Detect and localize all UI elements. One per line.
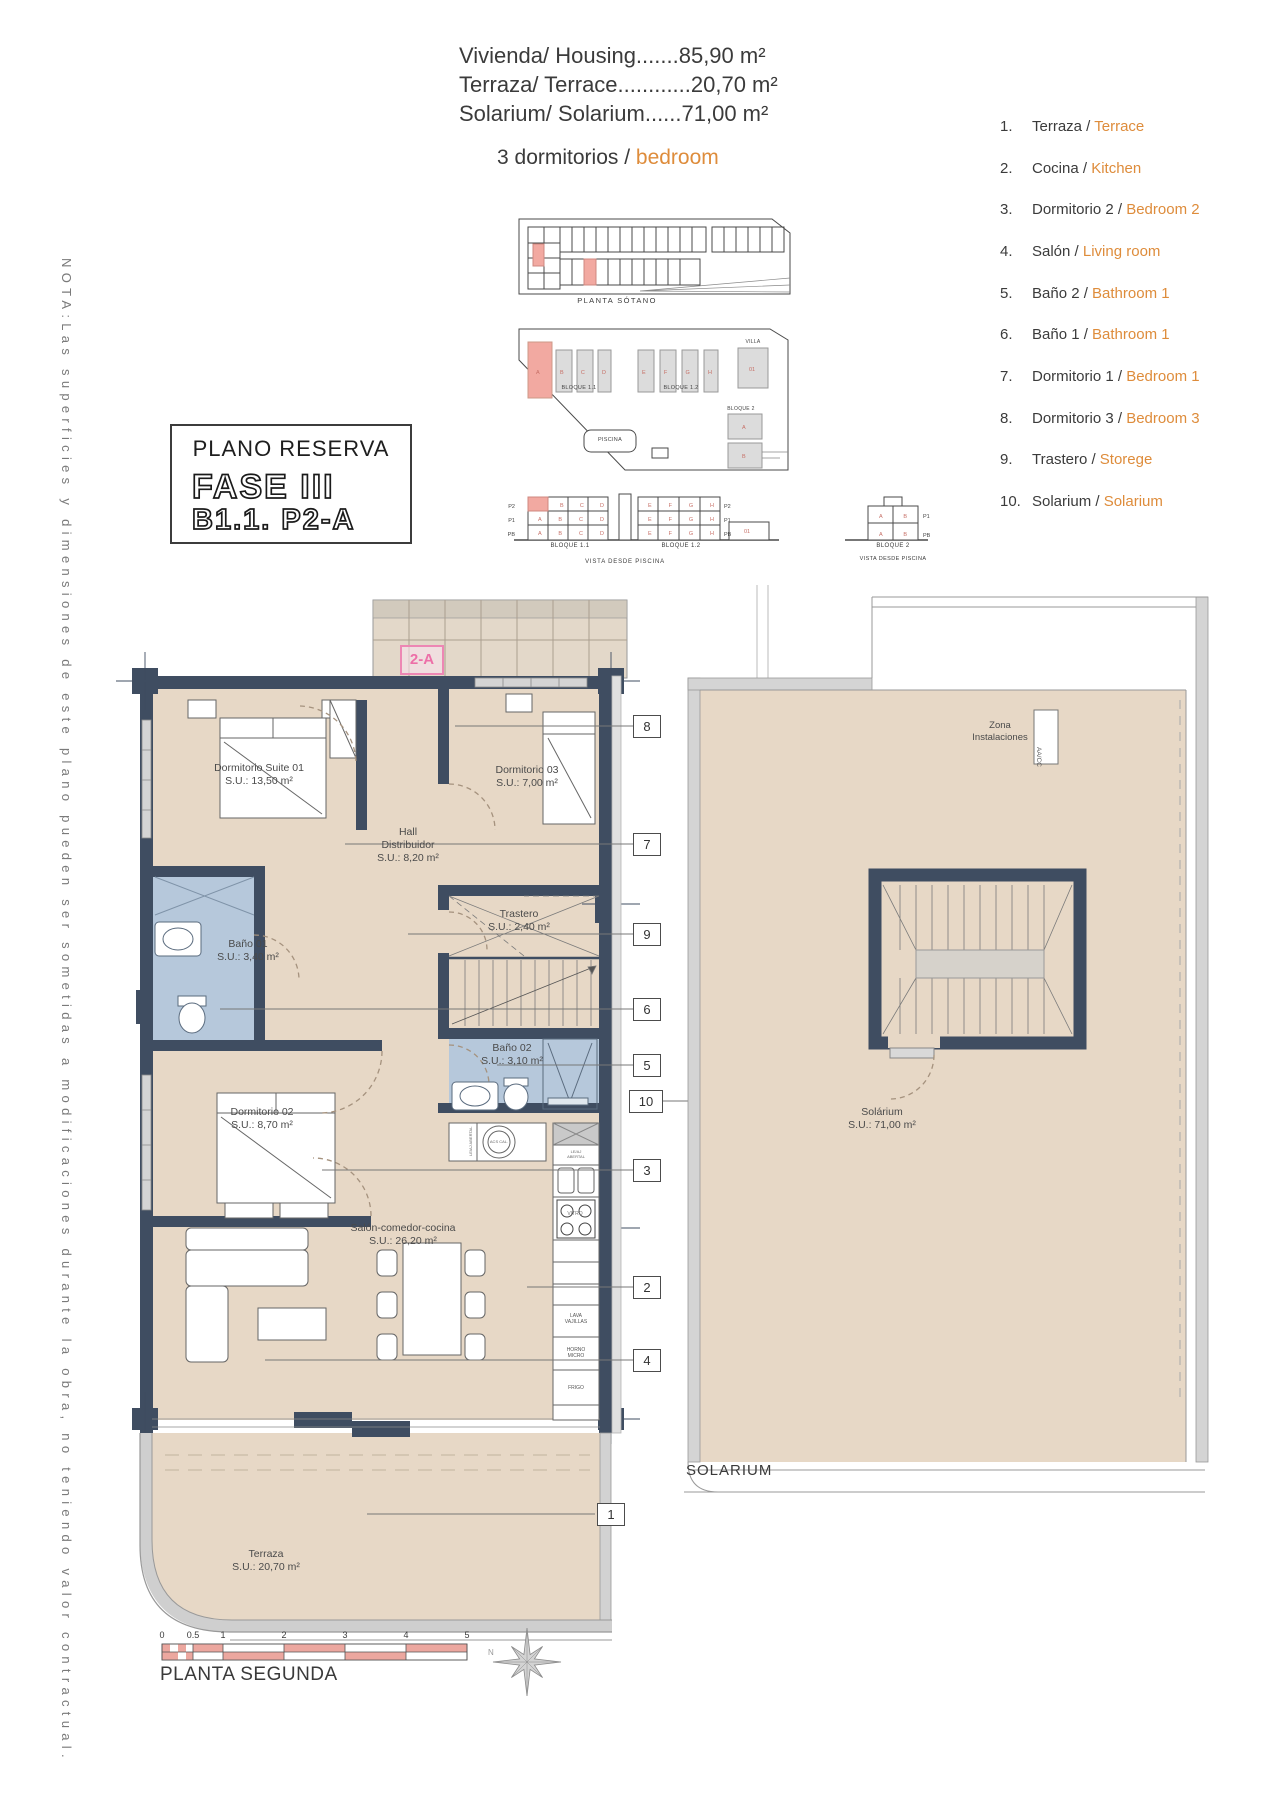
room-name: Baño 02 xyxy=(481,1042,543,1055)
legend-en: Solarium xyxy=(1104,493,1163,510)
floor-p2-right: P2 xyxy=(724,504,731,510)
room-area: S.U.: 7,00 m² xyxy=(495,777,558,790)
legend-num: 5. xyxy=(1000,285,1032,302)
legend-num: 6. xyxy=(1000,326,1032,343)
room-label-solarium: Solárium S.U.: 71,00 m² xyxy=(848,1106,916,1132)
legend-es: Dormitorio 2 / xyxy=(1032,201,1126,218)
room-label-bano01: Baño 01 S.U.: 3,40 m² xyxy=(217,938,279,964)
frigo-label: FRIGO xyxy=(568,1385,584,1391)
legend-item-10: 10.Solarium / Solarium xyxy=(1000,493,1163,510)
callout-2: 2 xyxy=(633,1276,661,1299)
solarium-caption: SOLARIUM xyxy=(686,1462,772,1479)
scale-tick-4: 4 xyxy=(403,1630,408,1640)
legend-es: Baño 1 / xyxy=(1032,326,1092,343)
room-area: S.U.: 26,20 m² xyxy=(350,1235,455,1248)
callout-1: 1 xyxy=(597,1503,625,1526)
room-name: Hall xyxy=(377,826,439,839)
scale-tick-2: 2 xyxy=(281,1630,286,1640)
legend-en: Kitchen xyxy=(1091,160,1141,177)
legend-es: Baño 2 / xyxy=(1032,285,1092,302)
room-label-zona: Zona Instalaciones xyxy=(972,720,1027,744)
room-name: Solárium xyxy=(848,1106,916,1119)
legend-num: 10. xyxy=(1000,493,1032,510)
callout-9: 9 xyxy=(633,923,661,946)
room-label-hall: Hall Distribuidor S.U.: 8,20 m² xyxy=(377,826,439,865)
legend-item-7: 7.Dormitorio 1 / Bedroom 1 xyxy=(1000,368,1200,385)
washer-tiny-label-2: LE/AJ ABERTAL xyxy=(567,1149,585,1159)
room-name: Dormitorio 02 xyxy=(230,1106,293,1119)
reserve-phase: FASE III xyxy=(192,468,335,507)
room-name: Dormitorio 03 xyxy=(495,764,558,777)
compass-north-label: N xyxy=(488,1648,494,1657)
subtitle-en: bedroom xyxy=(636,146,719,169)
room-label-bano02: Baño 02 S.U.: 3,10 m² xyxy=(481,1042,543,1068)
callout-5: 5 xyxy=(633,1054,661,1077)
room-name: Trastero xyxy=(488,908,550,921)
acs-label: ACS CAL. xyxy=(490,1139,508,1144)
callout-6: 6 xyxy=(633,998,661,1021)
basement-caption: PLANTA SÓTANO xyxy=(577,296,657,305)
legend-item-4: 4.Salón / Living room xyxy=(1000,243,1160,260)
room-area: S.U.: 13,50 m² xyxy=(214,775,304,788)
subtitle-es: 3 dormitorios / xyxy=(497,146,636,169)
legend-num: 1. xyxy=(1000,118,1032,135)
room-label-terraza: Terraza S.U.: 20,70 m² xyxy=(232,1548,300,1574)
room-area: S.U.: 8,70 m² xyxy=(230,1119,293,1132)
scale-tick-1: 1 xyxy=(220,1630,225,1640)
legend-item-3: 3.Dormitorio 2 / Bedroom 2 xyxy=(1000,201,1200,218)
legend-en: Bathroom 1 xyxy=(1092,285,1170,302)
legend-es: Trastero / xyxy=(1032,451,1100,468)
elev-bloque12-caption: BLOQUE 1.2 xyxy=(661,543,700,549)
room-label-suite: Dormitorio Suite 01 S.U.: 13,50 m² xyxy=(214,762,304,788)
vista-caption-right: VISTA DESDE PISCINA xyxy=(860,556,927,562)
room-name: Dormitorio Suite 01 xyxy=(214,762,304,775)
room-name: Zona xyxy=(972,720,1027,732)
site-bloque11-label: BLOQUE 1.1 xyxy=(561,385,596,391)
aacc-unit-label: AA/CC xyxy=(1035,747,1042,767)
legend-en: Living room xyxy=(1083,243,1161,260)
legend-num: 9. xyxy=(1000,451,1032,468)
elev-bloque2-caption: BLOQUE 2 xyxy=(876,543,909,549)
site-b2-b: B xyxy=(742,454,746,460)
elev-bloque11-caption: BLOQUE 1.1 xyxy=(550,543,589,549)
legend-es: Cocina / xyxy=(1032,160,1091,177)
room-name: Salón-comedor-cocina xyxy=(350,1222,455,1235)
room-area: S.U.: 71,00 m² xyxy=(848,1119,916,1132)
legend-es: Dormitorio 1 / xyxy=(1032,368,1126,385)
room-label-salon: Salón-comedor-cocina S.U.: 26,20 m² xyxy=(350,1222,455,1248)
room-area: S.U.: 3,10 m² xyxy=(481,1055,543,1068)
solarium-plan xyxy=(684,597,1208,1492)
planta-segunda-caption: PLANTA SEGUNDA xyxy=(160,1664,338,1686)
scale-tick-0: 0 xyxy=(159,1630,164,1640)
room-name2: Instalaciones xyxy=(972,732,1027,744)
area-line-solarium: Solarium/ Solarium......71,00 m² xyxy=(459,101,768,127)
legend-item-5: 5.Baño 2 / Bathroom 1 xyxy=(1000,285,1170,302)
site-bloque12-label: BLOQUE 1.2 xyxy=(663,385,698,391)
room-label-dorm03: Dormitorio 03 S.U.: 7,00 m² xyxy=(495,764,558,790)
legend-item-2: 2.Cocina / Kitchen xyxy=(1000,160,1141,177)
site-bloque2-label: BLOQUE 2 xyxy=(727,406,754,412)
legend-num: 7. xyxy=(1000,368,1032,385)
lava-line2: VAJILLAS xyxy=(565,1319,587,1325)
unit-tag-2a: 2-A xyxy=(400,645,444,675)
site-elevation-diagram xyxy=(514,494,928,540)
bedrooms-subtitle: 3 dormitorios / bedroom xyxy=(497,146,719,170)
room-area: S.U.: 2,40 m² xyxy=(488,921,550,934)
legend-es: Dormitorio 3 / xyxy=(1032,410,1126,427)
tiny-line1: LE/AJ xyxy=(468,1145,473,1156)
room-area: S.U.: 20,70 m² xyxy=(232,1561,300,1574)
floor-p1-right: P1 xyxy=(724,518,731,524)
legend-num: 8. xyxy=(1000,410,1032,427)
reserve-unit: B1.1. P2-A xyxy=(192,504,355,537)
elev-d1-label: 01 xyxy=(744,529,750,535)
floor-p1-left: P1 xyxy=(508,518,515,524)
callout-3: 3 xyxy=(633,1159,661,1182)
legend-es: Solarium / xyxy=(1032,493,1104,510)
plan-drawing: B C D A B C D A B C D E F G H E F G H E … xyxy=(0,0,1280,1811)
callout-8: 8 xyxy=(633,715,661,738)
room-area: S.U.: 8,20 m² xyxy=(377,852,439,865)
callout-10: 10 xyxy=(629,1090,663,1113)
horno-line2: MICRO xyxy=(567,1353,586,1359)
room-name: Baño 01 xyxy=(217,938,279,951)
scale-tick-3: 3 xyxy=(342,1630,347,1640)
room-name: Terraza xyxy=(232,1548,300,1561)
legend-en: Bedroom 1 xyxy=(1126,368,1199,385)
floor-pb-b2: PB xyxy=(923,533,931,539)
area-line-housing: Vivienda/ Housing.......85,90 m² xyxy=(459,43,766,69)
disclaimer-note: NOTA:Las superficies y dimensiones de es… xyxy=(59,258,74,1763)
tiny-line2: ABERTAL xyxy=(468,1127,473,1145)
legend-num: 4. xyxy=(1000,243,1032,260)
reserve-title: PLANO RESERVA xyxy=(172,436,410,462)
vista-caption-left: VISTA DESDE PISCINA xyxy=(585,559,665,565)
site-piscina-label: PISCINA xyxy=(598,437,622,443)
legend-item-6: 6.Baño 1 / Bathroom 1 xyxy=(1000,326,1170,343)
legend-es: Terraza / xyxy=(1032,118,1094,135)
site-plot-diagram xyxy=(519,329,788,470)
callout-7: 7 xyxy=(633,833,661,856)
legend-item-9: 9.Trastero / Storege xyxy=(1000,451,1152,468)
legend-en: Terrace xyxy=(1094,118,1144,135)
reserve-title-block: PLANO RESERVA FASE III B1.1. P2-A xyxy=(170,424,412,544)
floor-p1-b2: P1 xyxy=(923,514,930,520)
room-label-dorm02: Dormitorio 02 S.U.: 8,70 m² xyxy=(230,1106,293,1132)
legend-en: Storege xyxy=(1100,451,1153,468)
legend-item-1: 1.Terraza / Terrace xyxy=(1000,118,1144,135)
room-label-trastero: Trastero S.U.: 2,40 m² xyxy=(488,908,550,934)
legend-en: Bedroom 2 xyxy=(1126,201,1199,218)
legend-es: Salón / xyxy=(1032,243,1083,260)
lava-label: LAVA VAJILLAS xyxy=(565,1313,587,1325)
site-villa-letter: 01 xyxy=(749,367,755,373)
site-b2-a: A xyxy=(742,425,746,431)
compass-rose-icon xyxy=(493,1628,561,1696)
site11-a-letter: A xyxy=(536,370,540,376)
site-villa-label: VILLA xyxy=(745,339,760,345)
floor-pb-left: PB xyxy=(508,532,516,538)
legend-en: Bedroom 3 xyxy=(1126,410,1199,427)
legend-en: Bathroom 1 xyxy=(1092,326,1170,343)
room-name2: Distribuidor xyxy=(377,839,439,852)
tiny-line2: ABERTAL xyxy=(567,1154,585,1159)
area-line-terrace: Terraza/ Terrace............20,70 m² xyxy=(459,72,778,98)
vitro-label: VITRO xyxy=(567,1211,582,1217)
legend-item-8: 8.Dormitorio 3 / Bedroom 3 xyxy=(1000,410,1200,427)
washer-tiny-label-1: LE/AJ ABERTAL xyxy=(468,1127,473,1156)
site-basement-diagram xyxy=(519,219,790,294)
scale-tick-5: 5 xyxy=(464,1630,469,1640)
legend-num: 2. xyxy=(1000,160,1032,177)
scale-tick-05: 0.5 xyxy=(187,1630,200,1640)
room-area: S.U.: 3,40 m² xyxy=(217,951,279,964)
horno-label: HORNO MICRO xyxy=(567,1347,586,1359)
legend-num: 3. xyxy=(1000,201,1032,218)
floor-pb-right: PB xyxy=(724,532,732,538)
floor-p2-left: P2 xyxy=(508,504,515,510)
callout-4: 4 xyxy=(633,1349,661,1372)
scale-bar xyxy=(162,1644,467,1660)
floorplan-sheet: B C D A B C D A B C D E F G H E F G H E … xyxy=(0,0,1280,1811)
